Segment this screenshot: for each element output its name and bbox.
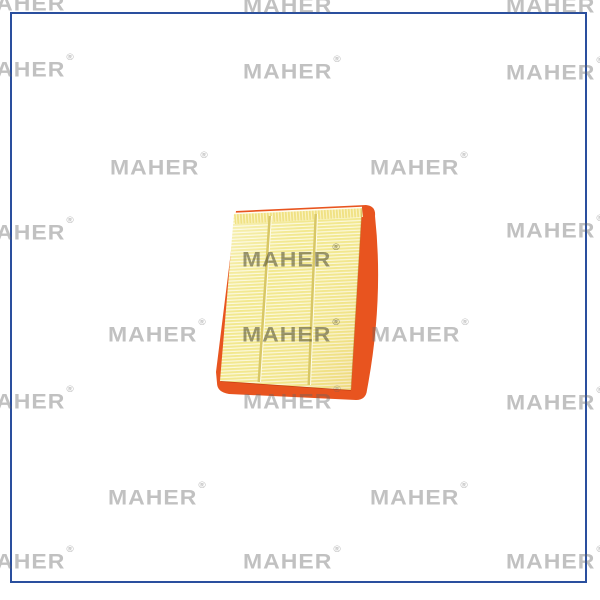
air-filter-image: [0, 0, 600, 600]
product-image-canvas: MAHER®MAHER®MAHER®MAHER®MAHER®MAHER®MAHE…: [0, 0, 600, 600]
filter-face-shading: [220, 208, 362, 390]
